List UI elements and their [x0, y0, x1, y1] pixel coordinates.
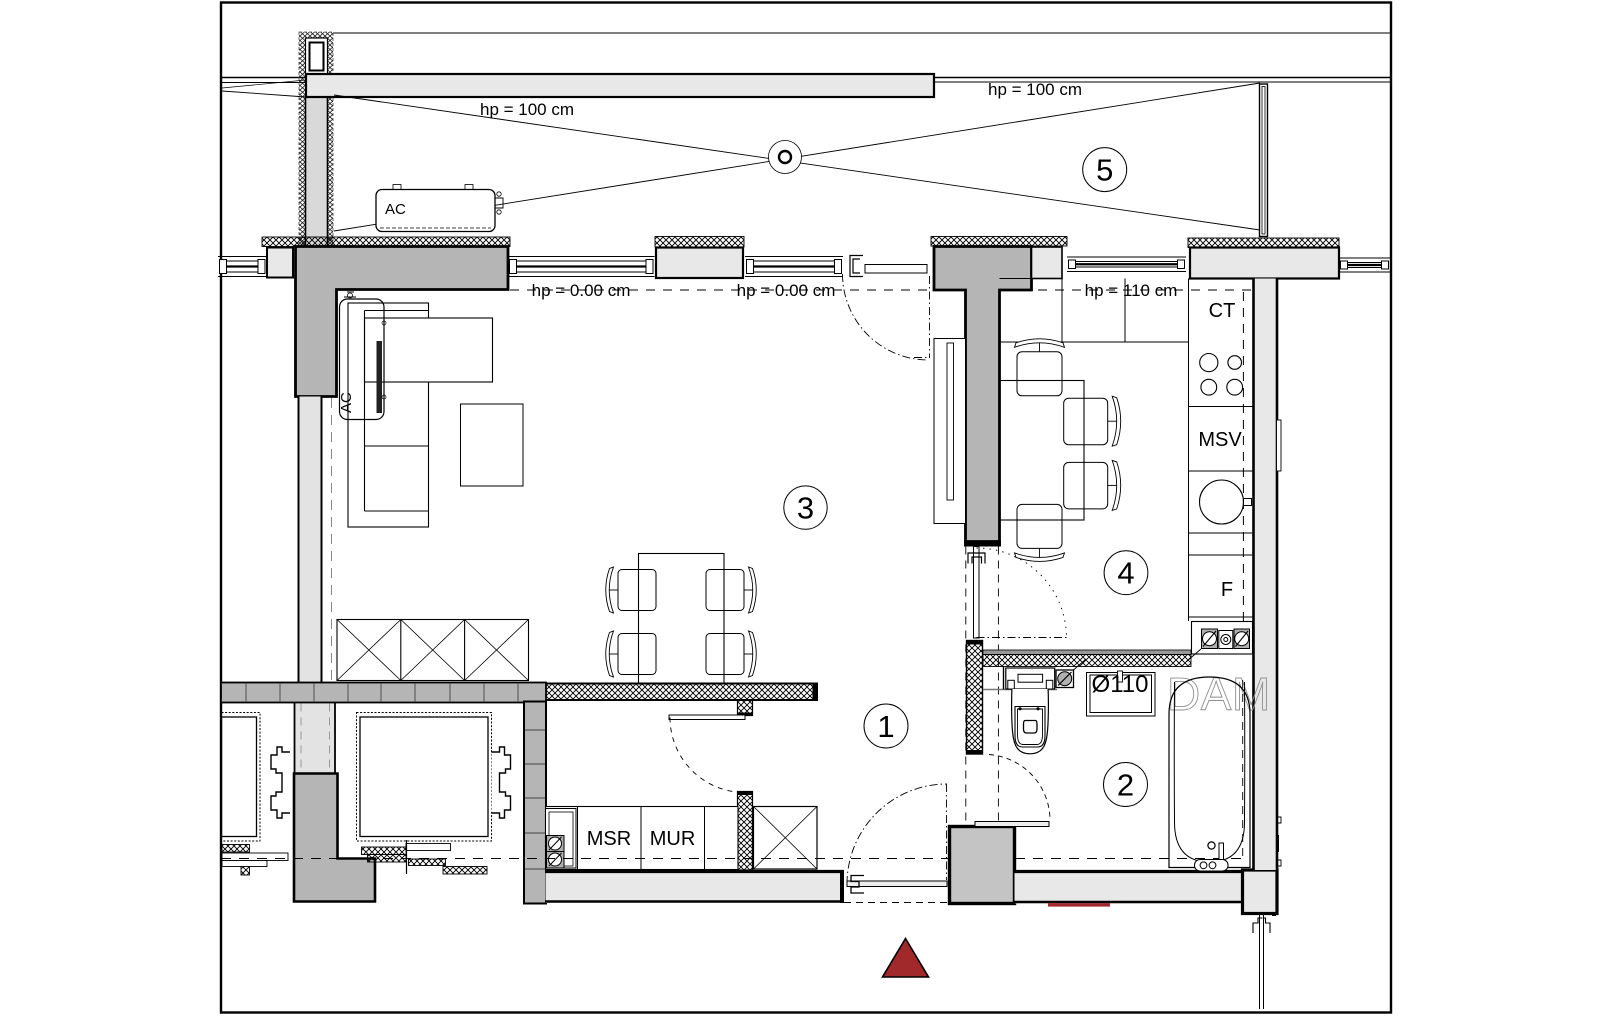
- svg-text:Ø110: Ø110: [1092, 671, 1149, 698]
- svg-text:hp = 110 cm: hp = 110 cm: [1085, 281, 1178, 300]
- svg-text:2: 2: [1117, 768, 1134, 803]
- svg-text:AC: AC: [338, 392, 355, 413]
- svg-text:hp = 100 cm: hp = 100 cm: [988, 80, 1082, 99]
- svg-text:hp = 0.00 cm: hp = 0.00 cm: [737, 281, 836, 300]
- svg-text:AC: AC: [385, 201, 406, 218]
- svg-text:DAM: DAM: [1167, 668, 1271, 720]
- svg-text:hp = 0.00 cm: hp = 0.00 cm: [532, 281, 631, 300]
- svg-text:CT: CT: [1209, 300, 1236, 322]
- svg-text:5: 5: [1096, 153, 1113, 188]
- svg-text:1: 1: [877, 709, 894, 744]
- svg-text:MSV: MSV: [1198, 429, 1242, 451]
- svg-text:4: 4: [1117, 556, 1134, 591]
- svg-text:F: F: [1221, 579, 1233, 601]
- svg-text:3: 3: [797, 491, 814, 526]
- svg-text:MUR: MUR: [650, 828, 696, 850]
- svg-text:MSR: MSR: [587, 828, 631, 850]
- svg-text:hp = 100 cm: hp = 100 cm: [480, 100, 574, 119]
